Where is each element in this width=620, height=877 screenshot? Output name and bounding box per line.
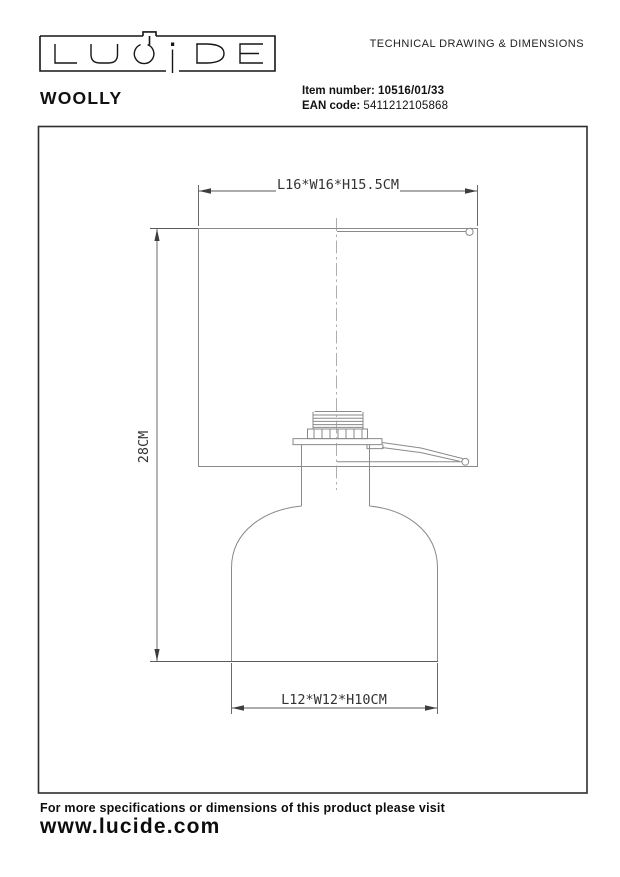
spec-sheet-page: TECHNICAL DRAWING & DIMENSIONS WOOLLY It…	[0, 0, 620, 877]
lamp-outline	[199, 228, 478, 661]
lamp-base	[232, 506, 302, 662]
dim-base-label: L12*W12*H10CM	[281, 692, 387, 708]
dim-height-label: 28CM	[136, 431, 152, 464]
lamp-neck	[302, 445, 370, 506]
technical-drawing: L16*W16*H15.5CM 28CM L12*W12*H10CM	[0, 0, 620, 877]
footer-note: For more specifications or dimensions of…	[40, 801, 445, 815]
dim-shade-label: L16*W16*H15.5CM	[277, 177, 399, 193]
footer-website: www.lucide.com	[40, 815, 221, 839]
lamp-socket	[293, 412, 383, 449]
